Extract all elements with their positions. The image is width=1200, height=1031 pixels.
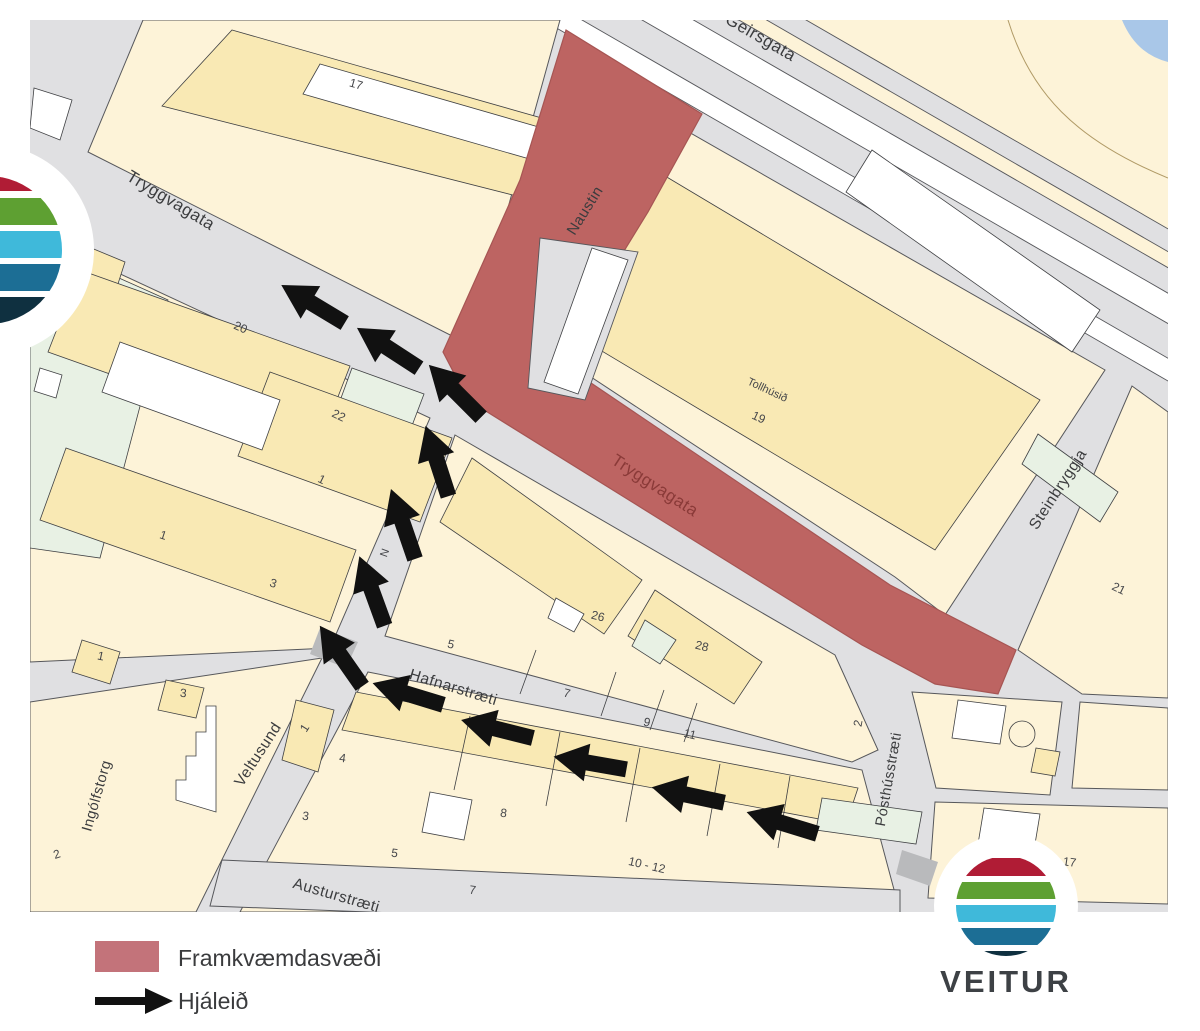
legend: Framkvæmdasvæði Hjáleið xyxy=(95,941,381,1014)
legend-construction-swatch xyxy=(95,941,159,972)
map: GeirsgataTryggvagataNaustinTryggvagataSt… xyxy=(30,0,1200,932)
building xyxy=(952,700,1006,744)
legend-arrow-icon xyxy=(95,988,173,1014)
logo-wordmark: VEITUR xyxy=(940,964,1072,999)
legend-construction-label: Framkvæmdasvæði xyxy=(178,945,381,971)
legend-detour-label: Hjáleið xyxy=(178,988,248,1014)
building-round xyxy=(1009,721,1035,747)
courtyard xyxy=(422,792,472,840)
city-block xyxy=(1072,702,1168,790)
map-page: GeirsgataTryggvagataNaustinTryggvagataSt… xyxy=(0,0,1200,1031)
map-canvas: GeirsgataTryggvagataNaustinTryggvagataSt… xyxy=(0,0,1200,1031)
building xyxy=(1031,748,1060,776)
veitur-logo: VEITUR xyxy=(934,834,1078,999)
